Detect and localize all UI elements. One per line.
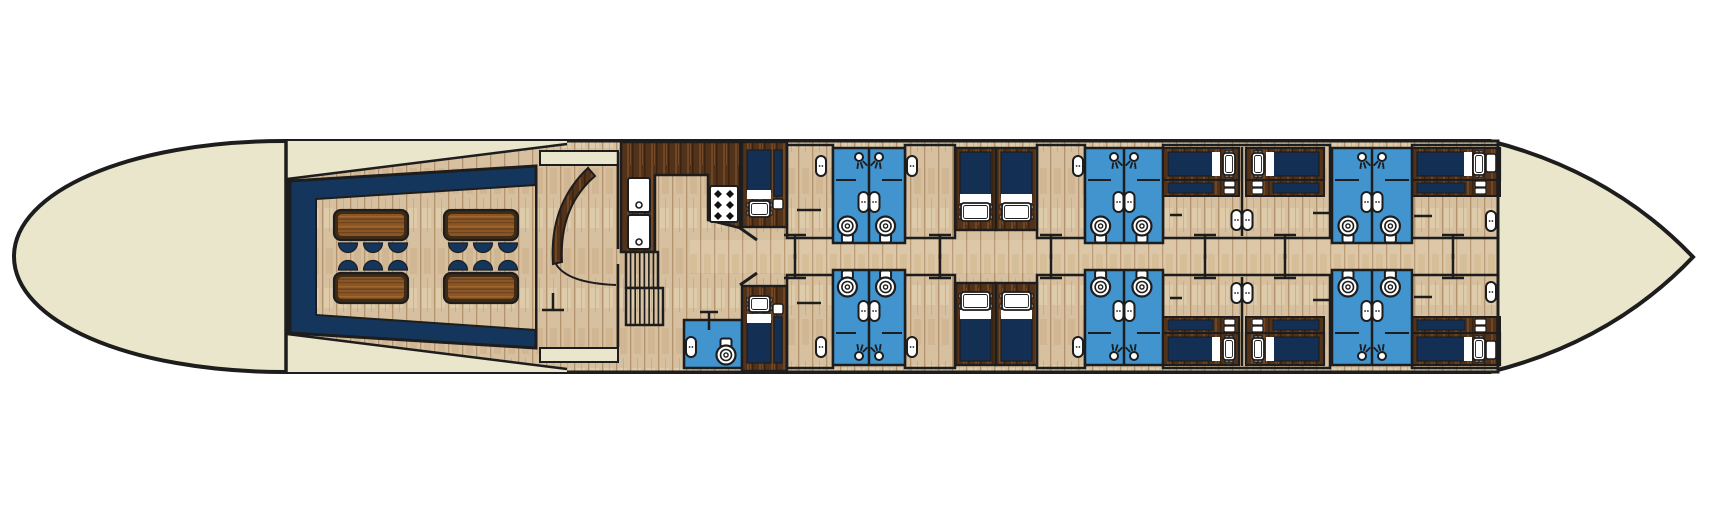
shower-head bbox=[875, 352, 883, 360]
faucet-dot bbox=[910, 346, 912, 348]
faucet-dot bbox=[1375, 310, 1377, 312]
pillow bbox=[1223, 151, 1235, 177]
shower-head bbox=[1378, 153, 1386, 161]
sink-basin bbox=[1232, 210, 1242, 230]
pillow bbox=[747, 296, 772, 312]
faucet-dot bbox=[875, 310, 877, 312]
lower-cabin-row bbox=[742, 254, 1500, 371]
shower-spray bbox=[1112, 344, 1113, 350]
shower-head bbox=[1130, 153, 1138, 161]
faucet-dot bbox=[692, 346, 694, 348]
stairs bbox=[626, 288, 663, 325]
faucet-dot bbox=[1079, 346, 1081, 348]
sheet-fold bbox=[1212, 337, 1220, 361]
bed-mattress bbox=[1168, 152, 1213, 176]
faucet-dot bbox=[1237, 219, 1239, 221]
faucet-dot bbox=[913, 165, 915, 167]
faucet-dot bbox=[875, 201, 877, 203]
shower-spray bbox=[880, 344, 881, 350]
faucet-dot bbox=[1367, 201, 1369, 203]
sink-icon bbox=[859, 192, 869, 212]
sink-basin bbox=[816, 337, 826, 357]
sheet-fold bbox=[960, 310, 991, 319]
sink-basin bbox=[686, 337, 696, 357]
bed-mattress bbox=[1417, 152, 1465, 176]
faucet-dot bbox=[1116, 310, 1118, 312]
shower-spray bbox=[1135, 344, 1136, 350]
sink-basin bbox=[1232, 283, 1242, 303]
shower-head bbox=[855, 352, 863, 360]
sink-basin bbox=[1125, 301, 1135, 321]
dining-table bbox=[444, 210, 518, 240]
dining-table bbox=[334, 210, 408, 240]
toilet-bowl bbox=[1381, 278, 1400, 297]
bench-cushion bbox=[1273, 320, 1319, 330]
shower-spray bbox=[1383, 162, 1384, 168]
shower-spray bbox=[880, 162, 881, 168]
bed-mattress bbox=[1168, 337, 1213, 361]
faucet-dot bbox=[689, 346, 691, 348]
shower-head bbox=[1130, 352, 1138, 360]
nightstand bbox=[1486, 154, 1496, 172]
bathroom-pair bbox=[833, 270, 905, 365]
sink-basin bbox=[1114, 301, 1124, 321]
faucet-dot bbox=[1127, 310, 1129, 312]
bed-wall bbox=[1412, 148, 1500, 196]
shower-head bbox=[1110, 352, 1118, 360]
sink-icon bbox=[816, 156, 826, 176]
sink-icon bbox=[907, 156, 917, 176]
faucet-dot bbox=[1245, 219, 1247, 221]
pillow bbox=[1473, 151, 1485, 177]
table-top bbox=[338, 214, 404, 236]
pillow bbox=[1223, 336, 1235, 362]
pillow-body bbox=[1252, 338, 1264, 360]
sink-basin bbox=[907, 156, 917, 176]
stove-icon bbox=[710, 186, 738, 222]
bench-pad bbox=[1475, 326, 1486, 332]
sheet-fold bbox=[1266, 152, 1274, 176]
bed-bench bbox=[774, 317, 782, 363]
faucet-dot bbox=[1489, 291, 1491, 293]
faucet-dot bbox=[910, 165, 912, 167]
table-top bbox=[448, 277, 514, 299]
lounge-floor bbox=[316, 185, 536, 330]
faucet-dot bbox=[822, 165, 824, 167]
pillow-body bbox=[1223, 338, 1235, 360]
toilet-bowl bbox=[1339, 278, 1358, 297]
sink-icon bbox=[686, 337, 696, 357]
sink-icon bbox=[816, 337, 826, 357]
upper-cabin-row bbox=[742, 142, 1500, 259]
shower-head bbox=[1358, 153, 1366, 161]
sink-icon bbox=[1114, 192, 1124, 212]
sink-basin bbox=[1243, 210, 1253, 230]
sink-icon bbox=[859, 301, 869, 321]
bed-wall bbox=[1163, 317, 1239, 365]
bed-wall bbox=[1246, 317, 1324, 365]
bench-pad bbox=[1224, 326, 1235, 332]
sink-basin bbox=[1486, 211, 1496, 231]
bed-twin bbox=[955, 283, 996, 365]
bench-pad bbox=[1252, 181, 1263, 187]
deck-plan-canvas bbox=[0, 0, 1720, 514]
stairs bbox=[626, 252, 658, 288]
bed-twin bbox=[955, 148, 996, 230]
sink-icon bbox=[1486, 282, 1496, 302]
shower-spray bbox=[1383, 344, 1384, 350]
sink-basin bbox=[907, 337, 917, 357]
toilet-bowl bbox=[1091, 278, 1110, 297]
bed-twin bbox=[996, 283, 1037, 365]
sink-icon bbox=[1073, 156, 1083, 176]
bench-pad bbox=[1475, 181, 1486, 187]
bed-mattress bbox=[747, 321, 771, 363]
toilet-bowl bbox=[1132, 217, 1151, 236]
toilet-bowl bbox=[838, 278, 857, 297]
bed-single bbox=[742, 142, 787, 227]
sink-basin bbox=[1486, 282, 1496, 302]
bed-mattress bbox=[960, 317, 991, 361]
bench-cushion bbox=[1417, 320, 1465, 330]
faucet-dot bbox=[1364, 310, 1366, 312]
sink-basin bbox=[1373, 301, 1383, 321]
bed-mattress bbox=[1273, 152, 1319, 176]
bed-single bbox=[742, 286, 787, 371]
sink-basin bbox=[816, 156, 826, 176]
toilet-bowl bbox=[717, 346, 736, 365]
sink-icon bbox=[870, 192, 880, 212]
shower-spray bbox=[1112, 162, 1113, 168]
faucet-dot bbox=[819, 165, 821, 167]
bench-cushion bbox=[1417, 183, 1465, 193]
bench-pad bbox=[773, 199, 783, 209]
pillow bbox=[1473, 336, 1485, 362]
bench-cushion bbox=[1168, 183, 1213, 193]
dining-table bbox=[444, 273, 518, 303]
faucet-dot bbox=[1076, 165, 1078, 167]
pillow bbox=[959, 203, 992, 221]
sink-basin bbox=[1125, 192, 1135, 212]
bed-mattress bbox=[1273, 337, 1319, 361]
bathroom-pair bbox=[833, 148, 905, 243]
sink-basin bbox=[1073, 337, 1083, 357]
bench-pad bbox=[1224, 181, 1235, 187]
dining-table bbox=[334, 273, 408, 303]
faucet-dot bbox=[1248, 292, 1250, 294]
sink-icon bbox=[1373, 301, 1383, 321]
shower-spray bbox=[1360, 344, 1361, 350]
pillow-body bbox=[1473, 338, 1485, 360]
bench-pad bbox=[1252, 188, 1263, 194]
pillow-body bbox=[1252, 153, 1264, 175]
sink-icon bbox=[870, 301, 880, 321]
sheet-fold bbox=[1001, 310, 1032, 319]
toilet-bowl bbox=[876, 278, 895, 297]
bench-pad bbox=[1224, 319, 1235, 325]
faucet-dot bbox=[1378, 201, 1380, 203]
appliance-knob bbox=[636, 202, 642, 208]
bed-mattress bbox=[960, 152, 991, 196]
pillow-body bbox=[1473, 153, 1485, 175]
shower-head bbox=[1378, 352, 1386, 360]
shower-spray bbox=[857, 344, 858, 350]
bathroom-pair bbox=[1085, 148, 1163, 243]
galley-cabinet bbox=[540, 348, 618, 362]
nightstand bbox=[1486, 341, 1496, 359]
sink-icon bbox=[1125, 192, 1135, 212]
bench-cushion bbox=[1273, 183, 1319, 193]
faucet-dot bbox=[1127, 201, 1129, 203]
sheet-fold bbox=[747, 190, 771, 199]
faucet-dot bbox=[1237, 292, 1239, 294]
faucet-dot bbox=[819, 346, 821, 348]
sink-icon bbox=[1114, 301, 1124, 321]
bed-twin bbox=[996, 148, 1037, 230]
sink-basin bbox=[859, 301, 869, 321]
faucet-dot bbox=[1492, 291, 1494, 293]
shower-spray bbox=[857, 162, 858, 168]
sink-icon bbox=[1362, 192, 1372, 212]
sink-basin bbox=[859, 192, 869, 212]
faucet-dot bbox=[913, 346, 915, 348]
sink-basin bbox=[870, 192, 880, 212]
sheet-fold bbox=[747, 314, 771, 323]
sink-icon bbox=[1243, 210, 1253, 230]
bench-pad bbox=[1252, 326, 1263, 332]
faucet-dot bbox=[1119, 310, 1121, 312]
pillow bbox=[1252, 336, 1264, 362]
bed-wall bbox=[1163, 148, 1239, 196]
pillow bbox=[959, 292, 992, 310]
bed-wall bbox=[1246, 148, 1324, 196]
sheet-fold bbox=[1001, 194, 1032, 203]
faucet-dot bbox=[1130, 310, 1132, 312]
sink-basin bbox=[870, 301, 880, 321]
sink-icon bbox=[1486, 211, 1496, 231]
sheet-fold bbox=[1266, 337, 1274, 361]
table-top bbox=[338, 277, 404, 299]
toilet-bowl bbox=[1091, 217, 1110, 236]
bench-pad bbox=[773, 304, 783, 314]
bed-bench bbox=[774, 150, 782, 196]
bathroom-pair bbox=[1332, 148, 1412, 243]
shower-spray bbox=[1360, 162, 1361, 168]
bed-mattress bbox=[1001, 152, 1032, 196]
faucet-dot bbox=[1076, 346, 1078, 348]
bench-pad bbox=[1252, 319, 1263, 325]
sheet-fold bbox=[960, 194, 991, 203]
sink-basin bbox=[1243, 283, 1253, 303]
faucet-dot bbox=[1079, 165, 1081, 167]
sink-basin bbox=[1362, 301, 1372, 321]
bed-mattress bbox=[1417, 337, 1465, 361]
sink-icon bbox=[1373, 192, 1383, 212]
table-top bbox=[448, 214, 514, 236]
corridor-floor bbox=[690, 240, 1498, 273]
pillow bbox=[1000, 203, 1033, 221]
sink-icon bbox=[1232, 283, 1242, 303]
shower-head bbox=[1110, 153, 1118, 161]
bed-mattress bbox=[747, 150, 771, 192]
faucet-dot bbox=[1492, 220, 1494, 222]
sink-basin bbox=[1373, 192, 1383, 212]
shower-spray bbox=[1135, 162, 1136, 168]
bed-mattress bbox=[1001, 317, 1032, 361]
sink-icon bbox=[1362, 301, 1372, 321]
faucet-dot bbox=[861, 201, 863, 203]
bathroom-pair bbox=[1332, 270, 1412, 365]
appliance-knob bbox=[636, 239, 642, 245]
faucet-dot bbox=[861, 310, 863, 312]
bench-pad bbox=[1224, 188, 1235, 194]
toilet-bowl bbox=[1381, 217, 1400, 236]
sink-icon bbox=[1073, 337, 1083, 357]
toilet-bowl bbox=[1339, 217, 1358, 236]
toilet-bowl bbox=[838, 217, 857, 236]
faucet-dot bbox=[1378, 310, 1380, 312]
faucet-dot bbox=[864, 201, 866, 203]
faucet-dot bbox=[1130, 201, 1132, 203]
sheet-fold bbox=[1464, 152, 1472, 176]
faucet-dot bbox=[864, 310, 866, 312]
toilet-bowl bbox=[876, 217, 895, 236]
bench-pad bbox=[1475, 319, 1486, 325]
pillow bbox=[1000, 292, 1033, 310]
faucet-dot bbox=[1367, 310, 1369, 312]
sheet-fold bbox=[1464, 337, 1472, 361]
faucet-dot bbox=[1234, 292, 1236, 294]
shower-head bbox=[1358, 352, 1366, 360]
faucet-dot bbox=[1245, 292, 1247, 294]
toilet-bowl bbox=[1132, 278, 1151, 297]
faucet-dot bbox=[872, 201, 874, 203]
sheet-fold bbox=[1212, 152, 1220, 176]
bed-wall bbox=[1412, 317, 1500, 365]
pillow bbox=[747, 201, 772, 217]
deck-plan bbox=[0, 0, 1720, 514]
shower-head bbox=[855, 153, 863, 161]
sink-icon bbox=[1125, 301, 1135, 321]
faucet-dot bbox=[1116, 201, 1118, 203]
faucet-dot bbox=[1248, 219, 1250, 221]
pillow-body bbox=[1223, 153, 1235, 175]
faucet-dot bbox=[872, 310, 874, 312]
bench-pad bbox=[1475, 188, 1486, 194]
galley-cabinet bbox=[540, 151, 618, 165]
sink-icon bbox=[907, 337, 917, 357]
bench-cushion bbox=[1168, 320, 1213, 330]
shower-head bbox=[875, 153, 883, 161]
sink-basin bbox=[1073, 156, 1083, 176]
bathroom-pair bbox=[1085, 270, 1163, 365]
pillow bbox=[1252, 151, 1264, 177]
faucet-dot bbox=[1364, 201, 1366, 203]
sink-icon bbox=[1232, 210, 1242, 230]
faucet-dot bbox=[1119, 201, 1121, 203]
faucet-dot bbox=[1375, 201, 1377, 203]
faucet-dot bbox=[822, 346, 824, 348]
faucet-dot bbox=[1489, 220, 1491, 222]
sink-basin bbox=[1362, 192, 1372, 212]
faucet-dot bbox=[1234, 219, 1236, 221]
sink-basin bbox=[1114, 192, 1124, 212]
sink-icon bbox=[1243, 283, 1253, 303]
